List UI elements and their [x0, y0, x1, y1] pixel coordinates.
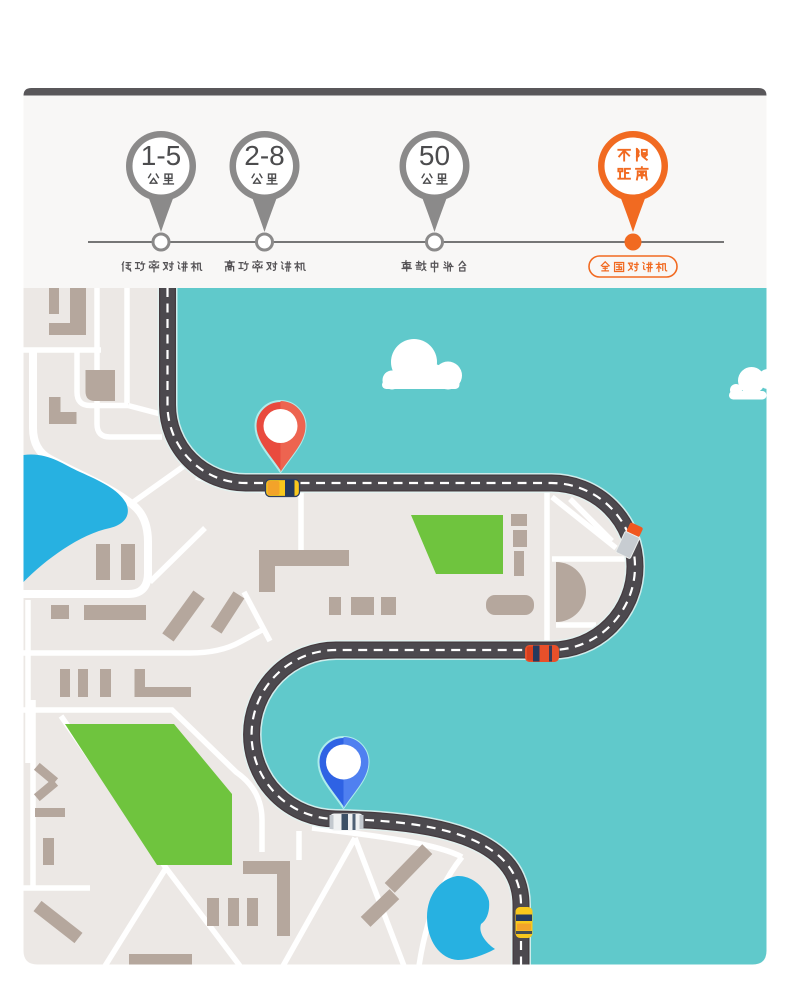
svg-text:1-5: 1-5	[141, 140, 181, 171]
svg-text:50: 50	[419, 140, 450, 171]
svg-text:2-8: 2-8	[244, 140, 284, 171]
